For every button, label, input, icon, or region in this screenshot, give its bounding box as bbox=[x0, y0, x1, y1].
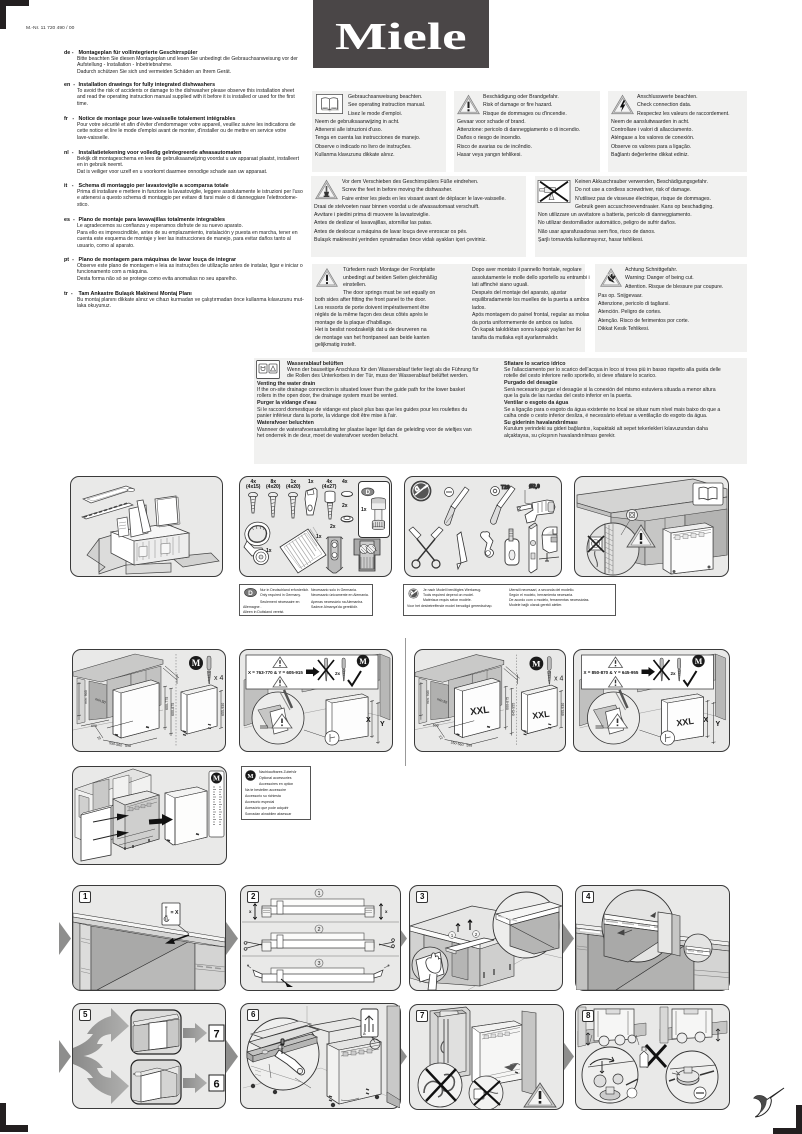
svg-text:x: x bbox=[385, 909, 388, 914]
svg-text:22: 22 bbox=[438, 735, 444, 741]
svg-text:Y: Y bbox=[716, 721, 721, 728]
svg-text:550-560: 550-560 bbox=[109, 741, 123, 748]
svg-text:X = 850-870 & Y = 645-955: X = 850-870 & Y = 645-955 bbox=[584, 670, 639, 675]
svg-text:645-955: 645-955 bbox=[512, 703, 516, 716]
svg-text:M: M bbox=[695, 657, 703, 666]
svg-text:2: 2 bbox=[317, 927, 320, 933]
svg-text:550-560: 550-560 bbox=[450, 740, 464, 747]
svg-text:x 4: x 4 bbox=[214, 675, 223, 682]
svg-text:598: 598 bbox=[125, 744, 131, 748]
svg-text:x 4: x 4 bbox=[554, 675, 563, 682]
svg-text:= X: = X bbox=[171, 910, 179, 916]
svg-text:3: 3 bbox=[317, 961, 320, 967]
svg-text:1: 1 bbox=[317, 891, 320, 897]
svg-text:6: 6 bbox=[213, 1079, 219, 1091]
svg-text:X = 763-770 & Y = 605-915: X = 763-770 & Y = 605-915 bbox=[248, 670, 303, 675]
svg-text:600: 600 bbox=[433, 724, 439, 728]
svg-text:695-930: 695-930 bbox=[561, 703, 565, 716]
svg-text:D: D bbox=[366, 489, 371, 496]
svg-text:655-930: 655-930 bbox=[221, 703, 225, 716]
svg-text:min. 905: min. 905 bbox=[84, 690, 88, 704]
svg-text:Y: Y bbox=[380, 721, 385, 728]
svg-text:x: x bbox=[249, 909, 252, 914]
svg-text:2x: 2x bbox=[335, 671, 341, 676]
svg-text:min. 905: min. 905 bbox=[426, 690, 430, 704]
svg-text:600-875: 600-875 bbox=[506, 697, 510, 710]
svg-text:600-775: 600-775 bbox=[165, 697, 169, 710]
svg-text:M: M bbox=[247, 773, 253, 780]
svg-text:D: D bbox=[248, 590, 253, 597]
svg-text:M: M bbox=[192, 658, 201, 668]
svg-text:2: 2 bbox=[475, 932, 478, 937]
svg-text:7: 7 bbox=[213, 1029, 219, 1041]
svg-text:a: a bbox=[363, 1031, 366, 1036]
svg-text:600: 600 bbox=[91, 724, 97, 728]
svg-text:598: 598 bbox=[466, 743, 472, 747]
svg-text:M: M bbox=[532, 658, 541, 668]
svg-text:M: M bbox=[213, 774, 220, 783]
svg-text:Ø2,0: Ø2,0 bbox=[529, 484, 540, 490]
svg-text:1: 1 bbox=[451, 933, 454, 938]
svg-text:M: M bbox=[359, 657, 367, 666]
svg-text:2x: 2x bbox=[671, 671, 677, 676]
svg-text:600-875: 600-875 bbox=[171, 703, 175, 716]
svg-text:X: X bbox=[704, 717, 709, 724]
svg-text:22: 22 bbox=[96, 735, 102, 741]
svg-text:X: X bbox=[366, 717, 371, 724]
